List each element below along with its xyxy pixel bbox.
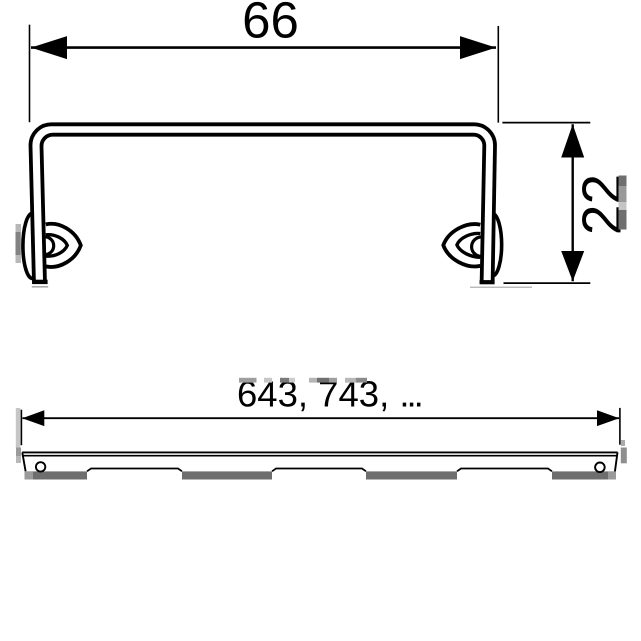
svg-text:66: 66 bbox=[242, 0, 299, 49]
